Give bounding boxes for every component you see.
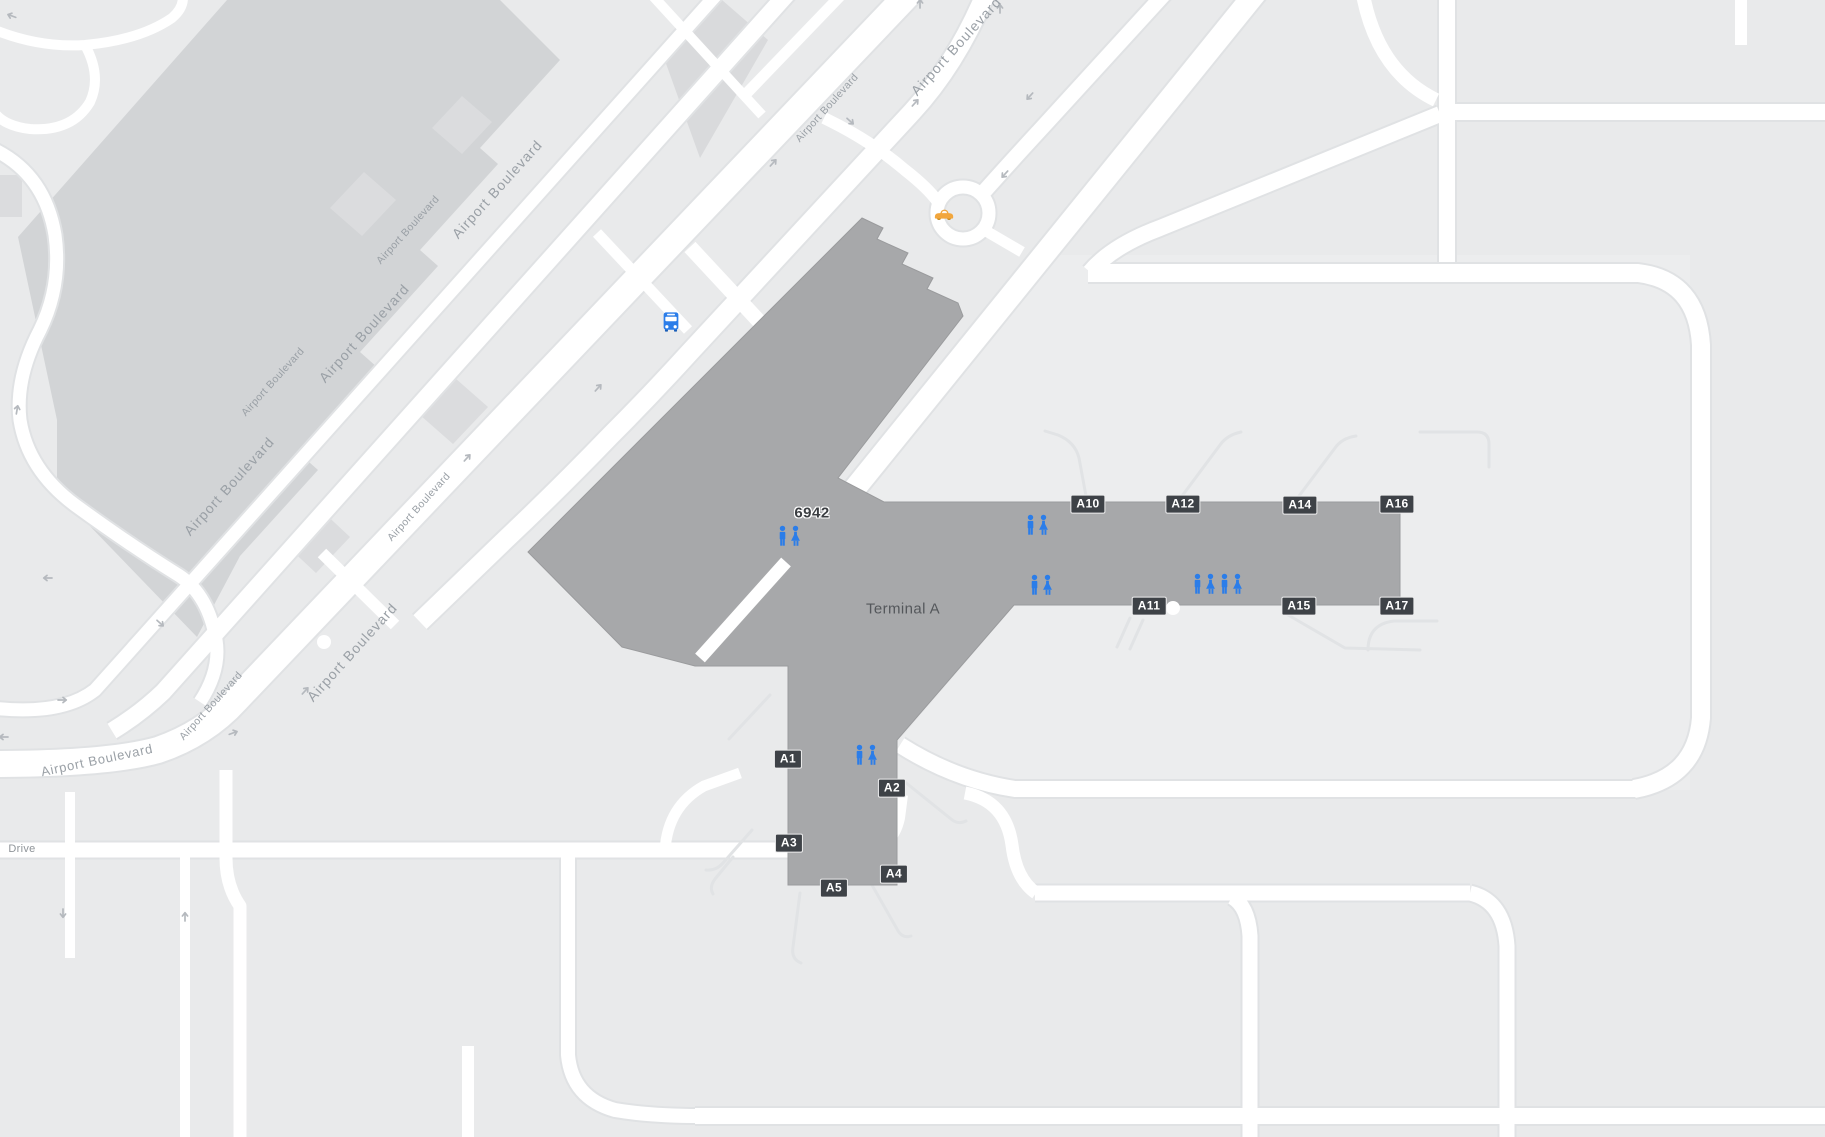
restroom-icon[interactable] bbox=[1220, 574, 1244, 595]
restroom-icon[interactable] bbox=[1030, 575, 1054, 596]
taxi-stand-icon[interactable] bbox=[933, 208, 955, 221]
road-culdesac bbox=[1166, 601, 1180, 615]
gate-badge-a5[interactable]: A5 bbox=[820, 879, 848, 898]
gate-badge-a3[interactable]: A3 bbox=[775, 834, 803, 853]
gate-badge-a15[interactable]: A15 bbox=[1281, 597, 1316, 616]
road-name-label: Drive bbox=[8, 843, 35, 855]
restroom-icon[interactable] bbox=[855, 745, 879, 766]
restroom-glyph bbox=[778, 526, 802, 547]
gate-badge-a11[interactable]: A11 bbox=[1132, 597, 1167, 616]
restroom-glyph bbox=[1030, 575, 1054, 596]
restroom-glyph bbox=[1193, 574, 1217, 595]
gate-badge-a2[interactable]: A2 bbox=[878, 779, 906, 798]
airport-map[interactable]: Terminal A 6942 const data = JSON.parse(… bbox=[0, 0, 1825, 1137]
map-canvas bbox=[0, 0, 1825, 1137]
landside-building bbox=[0, 175, 22, 217]
gate-badge-a10[interactable]: A10 bbox=[1070, 495, 1105, 514]
terminal-label: Terminal A bbox=[866, 601, 940, 618]
building-number-label: 6942 bbox=[794, 505, 829, 522]
gate-badge-a16[interactable]: A16 bbox=[1379, 495, 1414, 514]
taxi-glyph bbox=[933, 208, 955, 221]
restroom-glyph bbox=[855, 745, 879, 766]
road-culdesac bbox=[317, 635, 331, 649]
restroom-glyph bbox=[1026, 515, 1050, 536]
gate-badge-a14[interactable]: A14 bbox=[1282, 496, 1317, 515]
bus-glyph bbox=[663, 311, 680, 333]
restroom-icon[interactable] bbox=[1026, 515, 1050, 536]
restroom-glyph bbox=[1220, 574, 1244, 595]
restroom-icon[interactable] bbox=[1193, 574, 1217, 595]
gate-badge-a12[interactable]: A12 bbox=[1165, 495, 1200, 514]
restroom-icon[interactable] bbox=[778, 526, 802, 547]
gate-badge-a17[interactable]: A17 bbox=[1379, 597, 1414, 616]
gate-badge-a4[interactable]: A4 bbox=[880, 865, 908, 884]
gate-badge-a1[interactable]: A1 bbox=[774, 750, 802, 769]
bus-stop-icon[interactable] bbox=[663, 311, 680, 333]
